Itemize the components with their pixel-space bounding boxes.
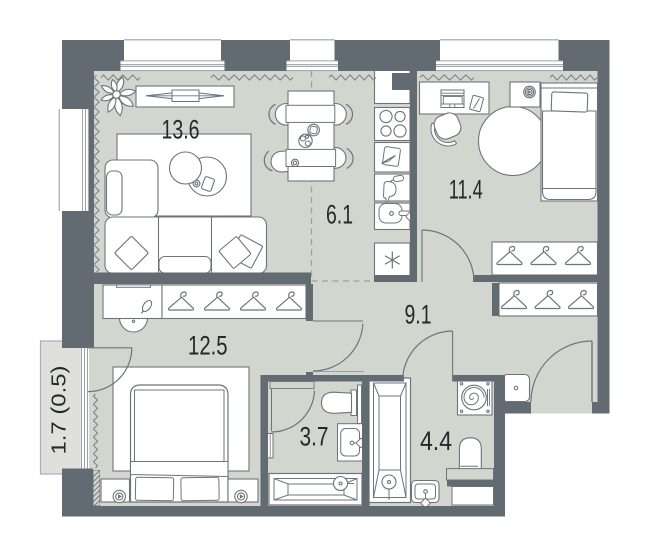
- svg-text:12.5: 12.5: [188, 331, 228, 361]
- svg-text:9.1: 9.1: [405, 299, 432, 329]
- svg-text:3.7: 3.7: [300, 422, 329, 452]
- svg-text:11.4: 11.4: [449, 175, 483, 205]
- svg-text:4.4: 4.4: [420, 426, 452, 456]
- svg-text:1.7 (0.5): 1.7 (0.5): [48, 366, 71, 455]
- svg-text:13.6: 13.6: [162, 115, 200, 145]
- svg-text:6.1: 6.1: [326, 200, 353, 230]
